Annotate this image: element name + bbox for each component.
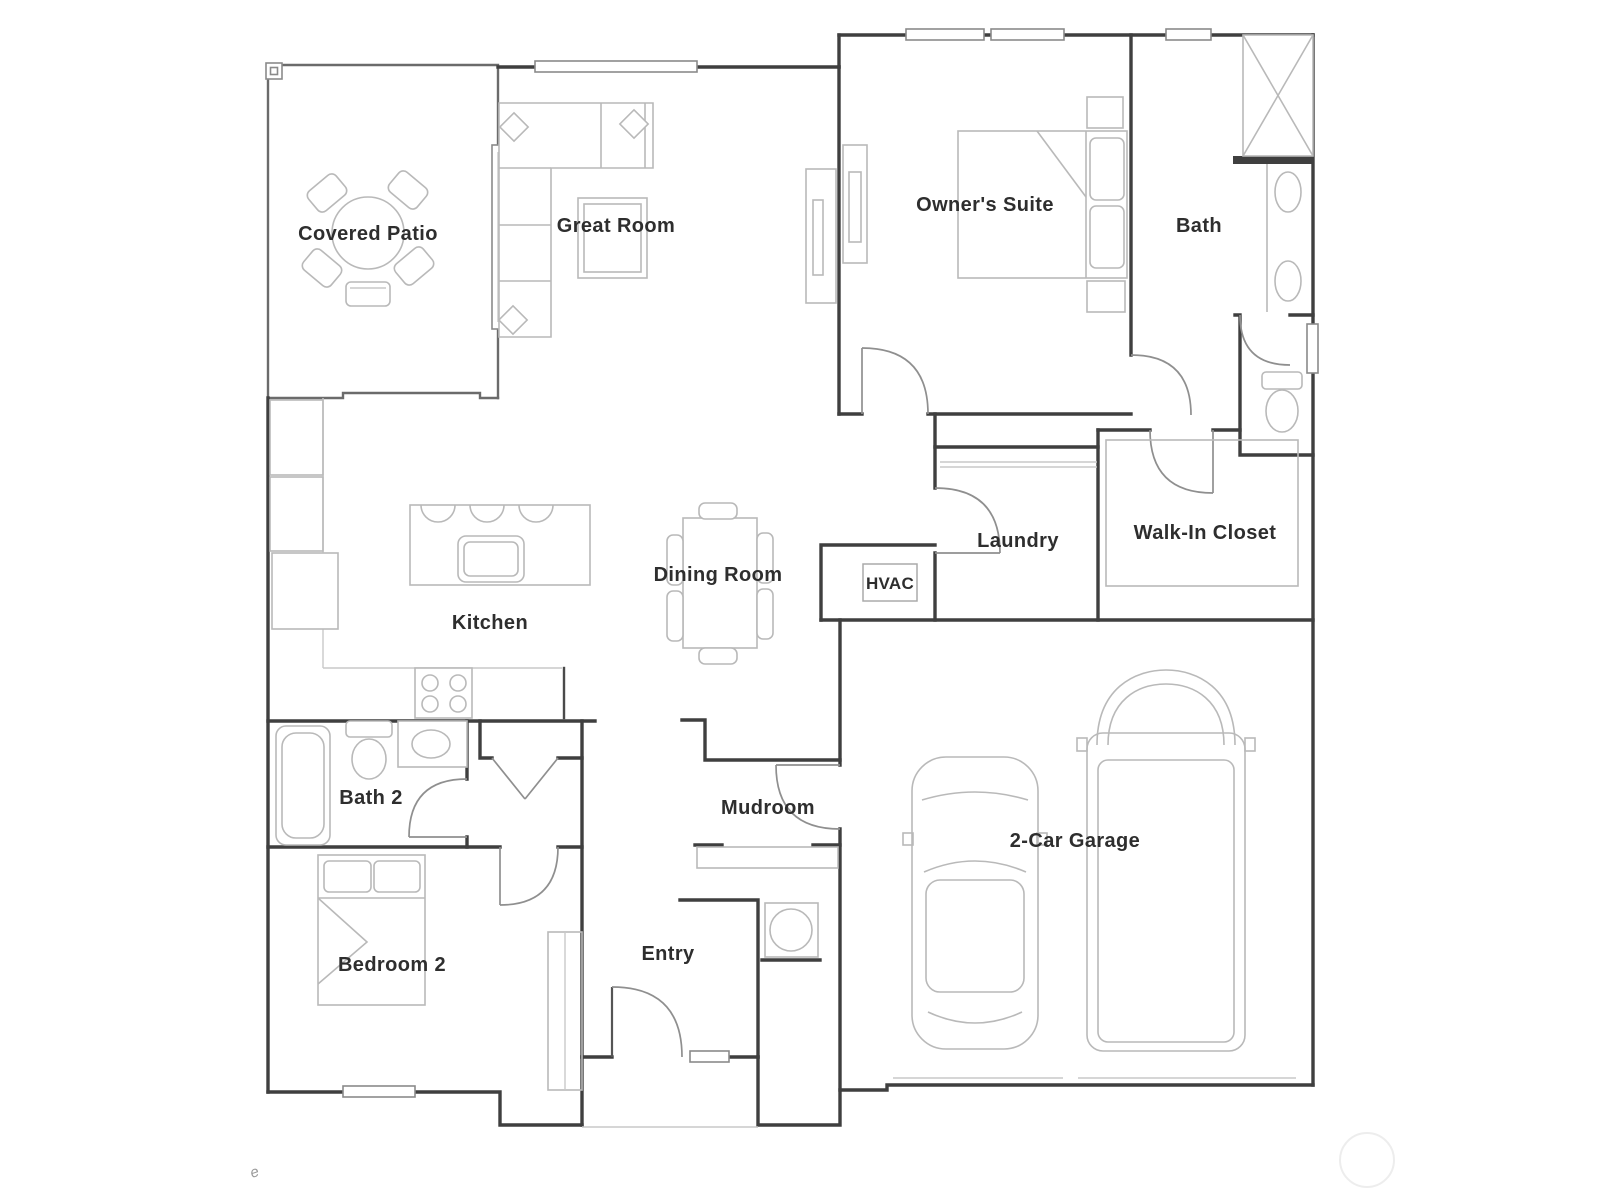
label-great-room: Great Room bbox=[557, 215, 675, 237]
bath-fixtures bbox=[1243, 35, 1313, 432]
dining-chair bbox=[757, 589, 773, 639]
label-kitchen: Kitchen bbox=[452, 612, 528, 634]
garage-vehicles bbox=[903, 670, 1255, 1051]
hall-closet-doors bbox=[492, 758, 558, 799]
laundry-shelf bbox=[940, 462, 1097, 467]
label-bath-2: Bath 2 bbox=[339, 787, 403, 809]
label-laundry: Laundry bbox=[977, 530, 1059, 552]
front-door bbox=[612, 987, 682, 1057]
bath-top-window bbox=[1166, 29, 1211, 40]
label-garage: 2-Car Garage bbox=[1010, 830, 1140, 852]
toilet-tank bbox=[346, 721, 392, 737]
dining-chair bbox=[667, 591, 683, 641]
bath-side-window bbox=[1307, 324, 1318, 373]
truck bbox=[1077, 670, 1255, 1051]
label-owners-suite: Owner's Suite bbox=[916, 194, 1054, 216]
owners-suite-window-1 bbox=[906, 29, 984, 40]
tv-console bbox=[806, 169, 836, 303]
toilet-tank bbox=[1262, 372, 1302, 389]
label-bath: Bath bbox=[1176, 215, 1222, 237]
floor-plan-canvas: Covered Patio Great Room Owner's Suite B… bbox=[0, 0, 1600, 1200]
mudroom-bench bbox=[697, 847, 838, 868]
label-bedroom-2: Bedroom 2 bbox=[338, 954, 446, 976]
toilet-bowl bbox=[352, 739, 386, 779]
sink bbox=[1275, 172, 1301, 212]
toilet-room-door bbox=[1240, 315, 1290, 365]
dresser bbox=[843, 145, 867, 263]
mudroom-entry-fixtures bbox=[697, 847, 838, 957]
owners-suite-window-2 bbox=[991, 29, 1064, 40]
car bbox=[903, 757, 1047, 1049]
vanity bbox=[398, 721, 467, 767]
dining-chair bbox=[699, 648, 737, 664]
nightstand bbox=[1087, 281, 1125, 312]
bath-2-door bbox=[409, 779, 467, 837]
bedroom-2-door bbox=[500, 847, 558, 905]
patio-chair bbox=[386, 168, 430, 211]
bathtub bbox=[276, 726, 330, 845]
dining-chair bbox=[699, 503, 737, 519]
laundry-walkin-hvac bbox=[863, 440, 1298, 601]
nightstand bbox=[1087, 97, 1123, 128]
pillow bbox=[324, 861, 371, 892]
label-covered-patio: Covered Patio bbox=[298, 223, 438, 245]
label-walk-in-closet: Walk-In Closet bbox=[1134, 522, 1277, 544]
pantry-cabinet bbox=[270, 400, 323, 475]
pillow bbox=[374, 861, 420, 892]
watermark-glyph: e bbox=[248, 1163, 261, 1182]
label-dining-room: Dining Room bbox=[654, 564, 783, 586]
owners-suite-door bbox=[862, 348, 928, 414]
floor-plan: Covered Patio Great Room Owner's Suite B… bbox=[0, 0, 1600, 1200]
kitchen-furniture bbox=[270, 398, 590, 718]
closet-shelving bbox=[1106, 440, 1298, 586]
refrigerator bbox=[272, 553, 338, 629]
doors bbox=[409, 315, 1290, 1057]
patio-chair bbox=[346, 282, 390, 306]
pillow bbox=[1090, 206, 1124, 268]
water-heater bbox=[765, 903, 818, 957]
entry-sidelite bbox=[690, 1051, 729, 1062]
bedroom-2-window bbox=[343, 1086, 415, 1097]
toilet-bowl bbox=[1266, 390, 1298, 432]
great-room-window bbox=[535, 61, 697, 72]
watermark-circle bbox=[1340, 1133, 1394, 1187]
pantry-cabinet bbox=[270, 477, 323, 551]
coffee-table bbox=[578, 198, 647, 278]
pillow bbox=[1090, 138, 1124, 200]
sink bbox=[1275, 261, 1301, 301]
label-mudroom: Mudroom bbox=[721, 797, 815, 819]
label-entry: Entry bbox=[641, 943, 695, 965]
shower-curb bbox=[1233, 156, 1313, 164]
bath-door bbox=[1131, 355, 1191, 415]
label-hvac: HVAC bbox=[866, 574, 914, 593]
watermark: e bbox=[248, 1133, 1394, 1187]
